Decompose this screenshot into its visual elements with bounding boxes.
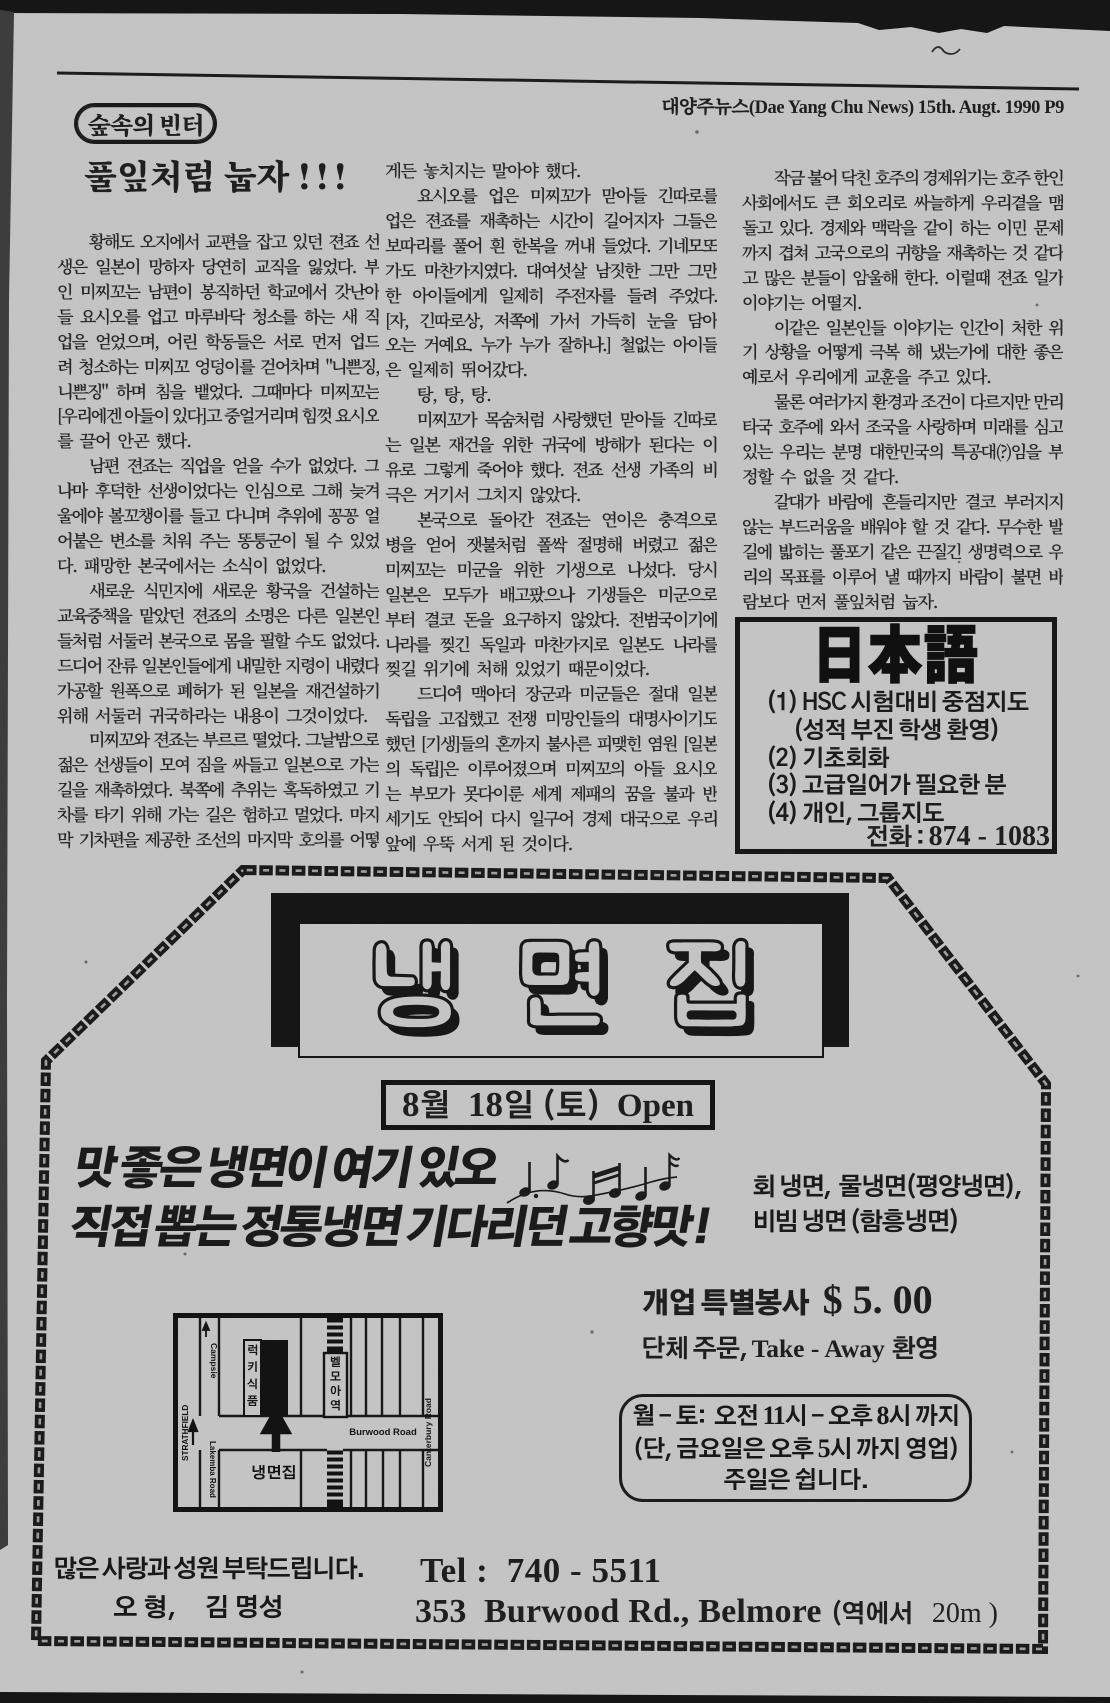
svg-text:Burwood Road: Burwood Road	[349, 1427, 417, 1438]
svg-text:STRATHFIELD: STRATHFIELD	[181, 1405, 190, 1461]
svg-text:역: 역	[330, 1400, 341, 1413]
svg-text:럭: 럭	[247, 1344, 258, 1357]
svg-text:냉면집: 냉면집	[251, 1464, 296, 1482]
svg-text:벨: 벨	[330, 1356, 341, 1369]
svg-text:Campsie: Campsie	[209, 1343, 219, 1379]
svg-text:키: 키	[247, 1361, 258, 1374]
svg-text:아: 아	[330, 1385, 342, 1398]
svg-text:모: 모	[330, 1372, 341, 1384]
svg-text:식: 식	[247, 1378, 258, 1391]
svg-text:Lakemba Road: Lakemba Road	[208, 1441, 217, 1498]
svg-text:Canterbury Road: Canterbury Road	[423, 1398, 433, 1467]
svg-text:품: 품	[247, 1395, 258, 1408]
